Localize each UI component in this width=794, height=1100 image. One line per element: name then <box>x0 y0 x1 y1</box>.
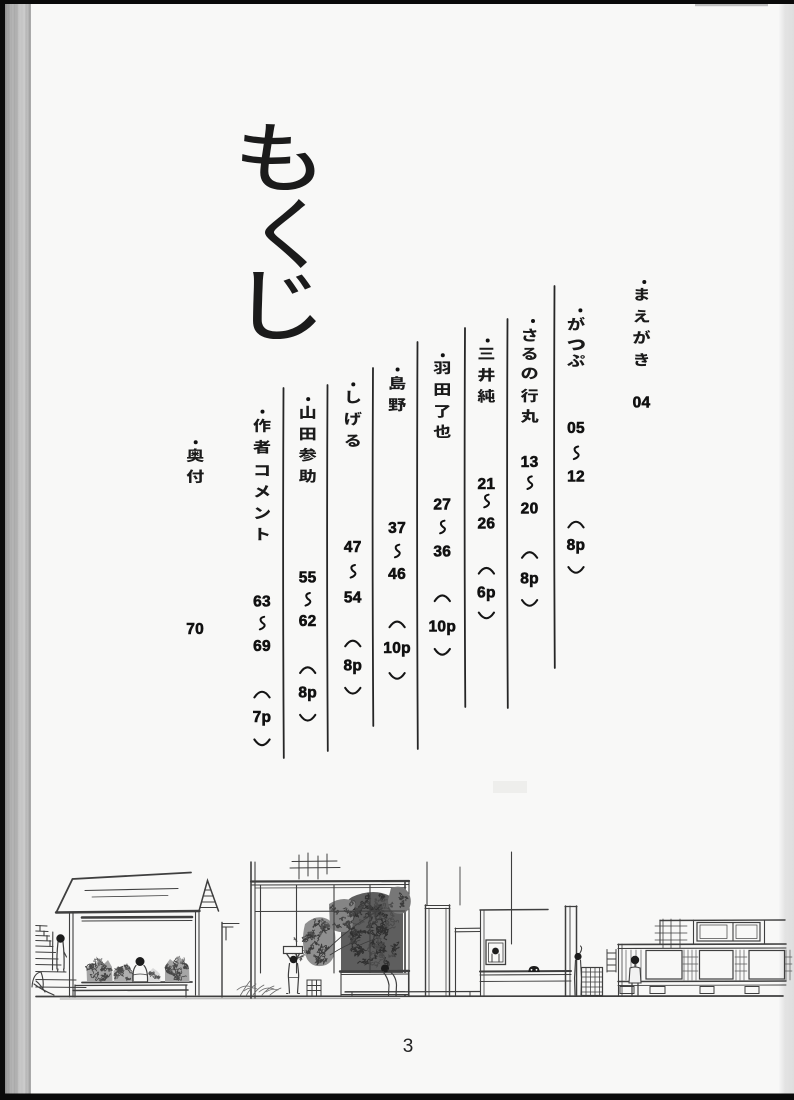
svg-text:26: 26 <box>477 516 495 533</box>
svg-text:69: 69 <box>253 638 271 655</box>
svg-text:8p: 8p <box>298 685 317 702</box>
svg-text:10p: 10p <box>428 619 456 636</box>
svg-text:04: 04 <box>633 394 651 411</box>
svg-text:13: 13 <box>521 454 539 471</box>
svg-text:7p: 7p <box>253 709 272 726</box>
svg-text:27: 27 <box>433 497 451 514</box>
svg-text:6p: 6p <box>477 584 496 601</box>
svg-text:47: 47 <box>344 539 362 556</box>
svg-text:55: 55 <box>299 569 317 586</box>
svg-text:63: 63 <box>253 594 271 611</box>
svg-text:37: 37 <box>388 520 406 537</box>
svg-text:8p: 8p <box>343 657 362 674</box>
svg-text:8p: 8p <box>567 537 586 554</box>
svg-text:54: 54 <box>344 589 362 606</box>
svg-text:12: 12 <box>567 469 585 486</box>
svg-text:36: 36 <box>433 543 451 560</box>
svg-text:3: 3 <box>403 1036 414 1057</box>
svg-text:70: 70 <box>186 621 204 638</box>
svg-text:05: 05 <box>567 420 585 437</box>
svg-text:8p: 8p <box>520 570 539 587</box>
svg-text:62: 62 <box>299 613 317 630</box>
svg-text:21: 21 <box>477 476 495 493</box>
svg-text:20: 20 <box>521 500 539 517</box>
svg-text:46: 46 <box>388 566 406 583</box>
svg-text:10p: 10p <box>383 640 411 657</box>
